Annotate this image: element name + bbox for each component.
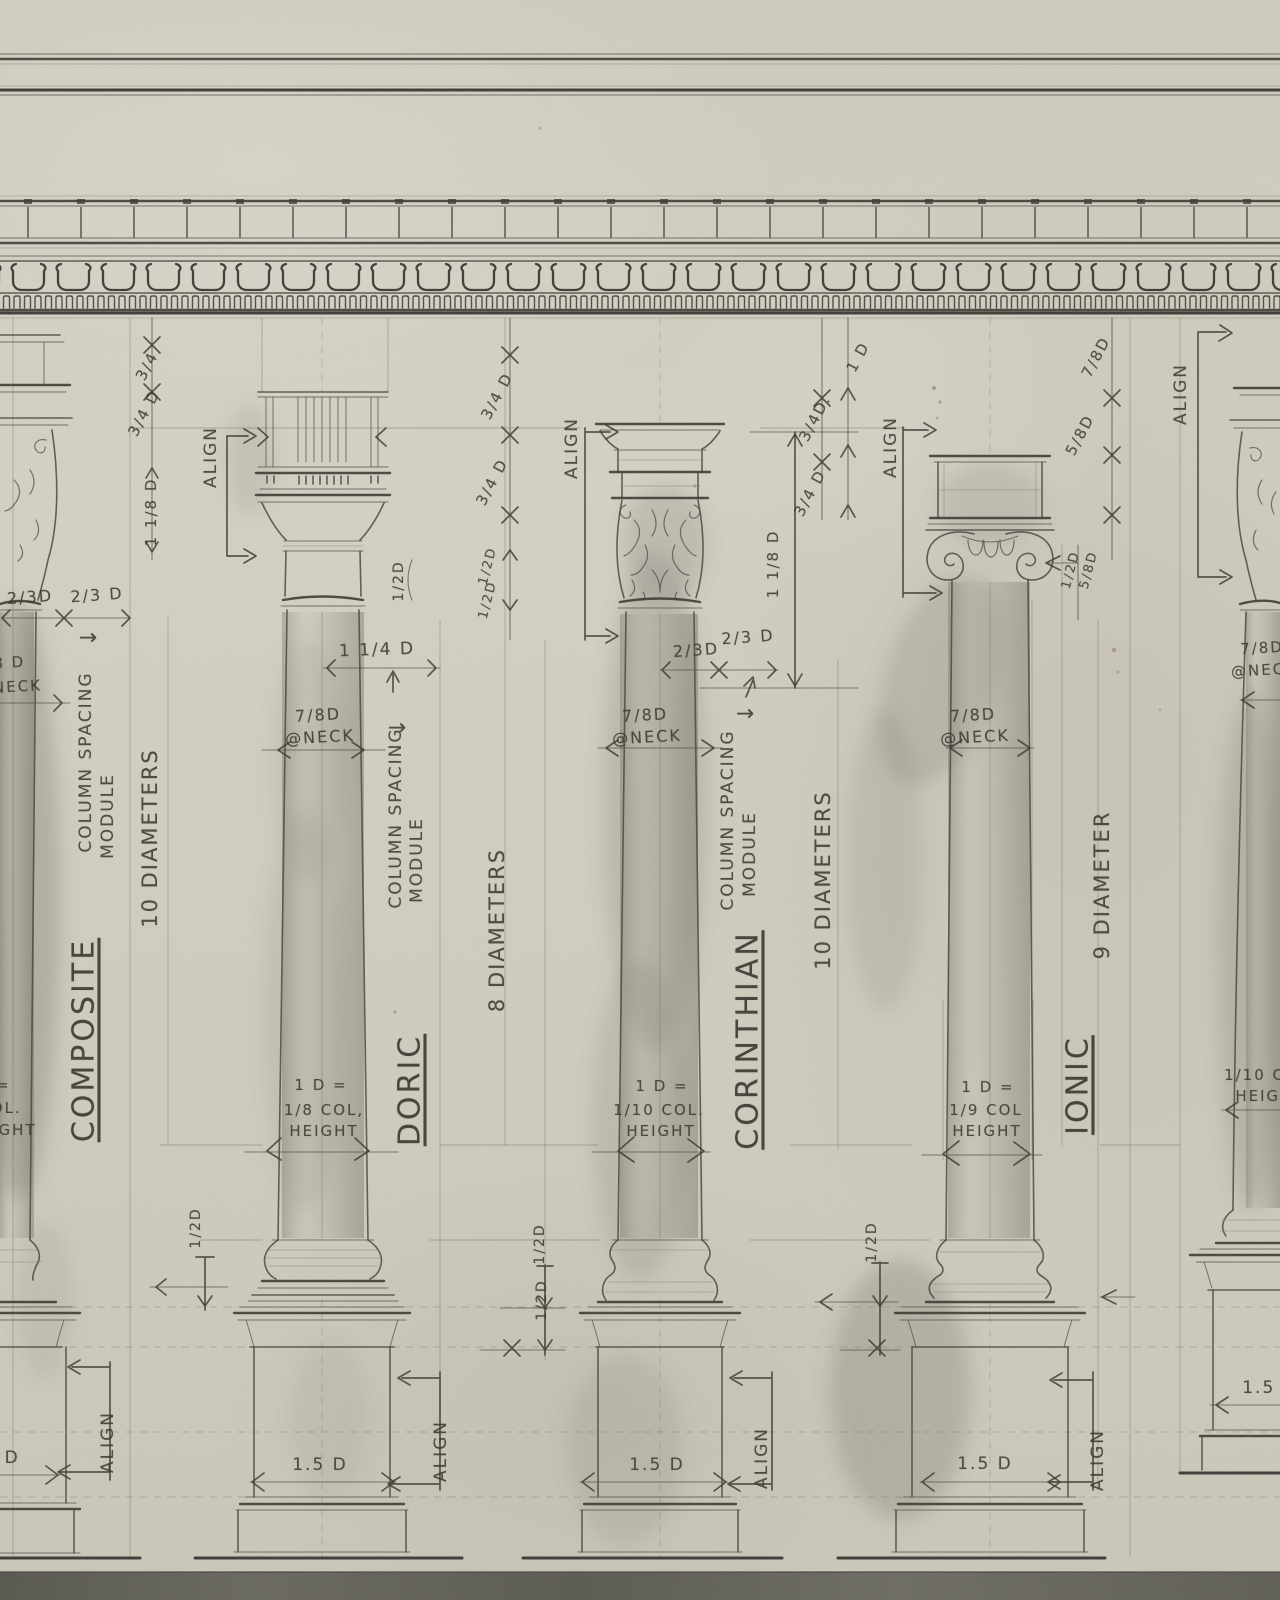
ratio-label: 1 D = xyxy=(961,1078,1014,1096)
column-spacing-label: COLUMN SPACING xyxy=(386,727,406,908)
neck-dim-label: 7/8D xyxy=(294,704,341,725)
order-label-composite: COMPOSITE xyxy=(67,938,102,1142)
neck-dim-label: 7/8D xyxy=(621,704,668,725)
ratio-label: 1/8 COL, xyxy=(284,1101,364,1119)
ratio-label: 1 D = xyxy=(294,1076,347,1094)
dim-label: 1/2D xyxy=(532,1223,548,1264)
dim-label: 1.5 D xyxy=(957,1454,1013,1474)
align-label: ALIGN xyxy=(1171,363,1191,425)
module-label: MODULE xyxy=(98,773,118,859)
dim-label: 1.5 D xyxy=(629,1455,685,1475)
module-label: MODULE xyxy=(740,811,760,897)
dim-label: 2/3 D xyxy=(721,626,775,649)
order-label-doric: DORIC xyxy=(393,1034,428,1146)
align-label: ALIGN xyxy=(1088,1429,1108,1491)
align-label: ALIGN xyxy=(431,1420,451,1482)
align-label: ALIGN xyxy=(201,426,221,488)
align-label: ALIGN xyxy=(881,416,901,478)
neck-dim-label: @NECK xyxy=(285,726,356,749)
module-label: MODULE xyxy=(407,817,427,903)
ratio-label: 1/10 COL. xyxy=(1224,1066,1280,1084)
diameters-label: 9 DIAMETER xyxy=(1090,811,1114,960)
paper-grain xyxy=(0,0,1280,1600)
align-label: ALIGN xyxy=(752,1427,772,1489)
neck-dim-label: 7/8D xyxy=(1240,638,1280,658)
dim-label: 1.5 D xyxy=(1242,1378,1280,1398)
spacing-arrow-icon: → xyxy=(736,702,756,727)
ratio-label: HEIGHT xyxy=(289,1122,358,1140)
neck-dim-label: @NECK xyxy=(0,676,42,697)
dim-label: 1/2D xyxy=(391,560,407,601)
dim-label: 1 1/4 D xyxy=(339,639,416,662)
diameters-label: 10 DIAMETERS xyxy=(138,748,162,928)
dim-label: 1.5 D xyxy=(292,1455,348,1475)
neck-dim-label: @NECK xyxy=(1231,659,1280,680)
ratio-label: COL. xyxy=(0,1099,22,1117)
diameters-label: 8 DIAMETERS xyxy=(485,848,509,1012)
diameters-label: 10 DIAMETERS xyxy=(811,790,835,970)
neck-dim-label: @NECK xyxy=(612,726,683,749)
column-spacing-label: COLUMN SPACING xyxy=(718,729,738,910)
neck-dim-label: @NECK xyxy=(940,726,1011,749)
dim-label: 1 1/8 D xyxy=(764,530,782,599)
ratio-label: HEIGHT xyxy=(952,1122,1021,1140)
neck-dim-label: 7/8D xyxy=(949,704,996,725)
dim-label: 1/2D xyxy=(864,1221,880,1262)
ratio-label: 1 D = xyxy=(635,1077,688,1095)
ratio-label: 1/9 COL xyxy=(949,1101,1023,1119)
dim-label: 2/3 D xyxy=(70,584,124,607)
neck-dim-label: 7/8 D xyxy=(0,653,26,674)
spacing-arrow-icon: → xyxy=(79,626,99,651)
ratio-label: HEIGHT xyxy=(0,1121,37,1139)
order-label-corinthian: CORINTHIAN xyxy=(731,930,766,1149)
order-label-ionic: IONIC xyxy=(1061,1035,1096,1135)
dim-label: 2/3D xyxy=(6,586,53,608)
ratio-label: 1/10 COL. xyxy=(613,1101,705,1119)
dim-label: 1 1/8 D xyxy=(142,478,160,547)
ratio-label: 1 D = xyxy=(0,1076,11,1094)
dim-label: 2/3D xyxy=(672,639,719,661)
dim-label: 1.5 D xyxy=(0,1448,20,1468)
align-label: ALIGN xyxy=(98,1411,118,1473)
ratio-label: HEIGHT xyxy=(1235,1087,1280,1105)
column-spacing-label: COLUMN SPACING xyxy=(76,671,96,852)
orders-artwork xyxy=(0,0,1280,1600)
classical-orders-drawing: 3/4 3/4 D 1 1/8 D ALIGN 2/3D 2/3 D 7/8 D… xyxy=(0,0,1280,1600)
dim-label: 1/2D xyxy=(534,1279,550,1320)
dim-label: 1/2D xyxy=(188,1207,204,1248)
ratio-label: HEIGHT xyxy=(626,1122,695,1140)
align-label: ALIGN xyxy=(562,417,582,479)
